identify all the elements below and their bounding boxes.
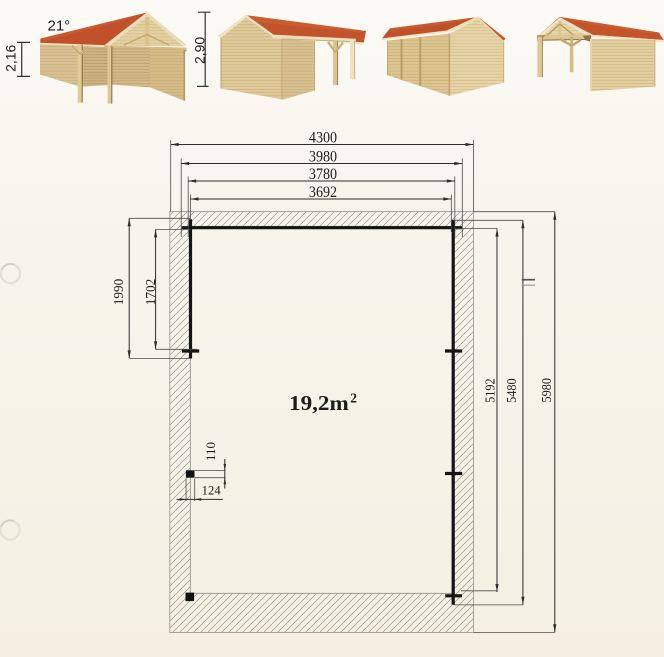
- svg-text:3980: 3980: [309, 148, 337, 165]
- svg-text:1990: 1990: [111, 278, 126, 305]
- svg-text:21°: 21°: [48, 18, 71, 35]
- svg-text:5192: 5192: [483, 378, 498, 403]
- svg-text:124: 124: [202, 484, 222, 498]
- svg-text:2: 2: [350, 390, 357, 405]
- svg-text:5980: 5980: [539, 378, 554, 403]
- svg-text:4300: 4300: [309, 129, 337, 146]
- svg-text:2,90: 2,90: [191, 37, 207, 64]
- svg-text:3780: 3780: [309, 166, 337, 183]
- svg-text:110: 110: [204, 442, 218, 461]
- svg-text:5480: 5480: [504, 378, 519, 403]
- svg-text:3692: 3692: [309, 184, 337, 201]
- svg-text:19,2m: 19,2m: [289, 391, 349, 415]
- svg-text:1702: 1702: [143, 279, 158, 305]
- svg-text:2,16: 2,16: [3, 44, 19, 71]
